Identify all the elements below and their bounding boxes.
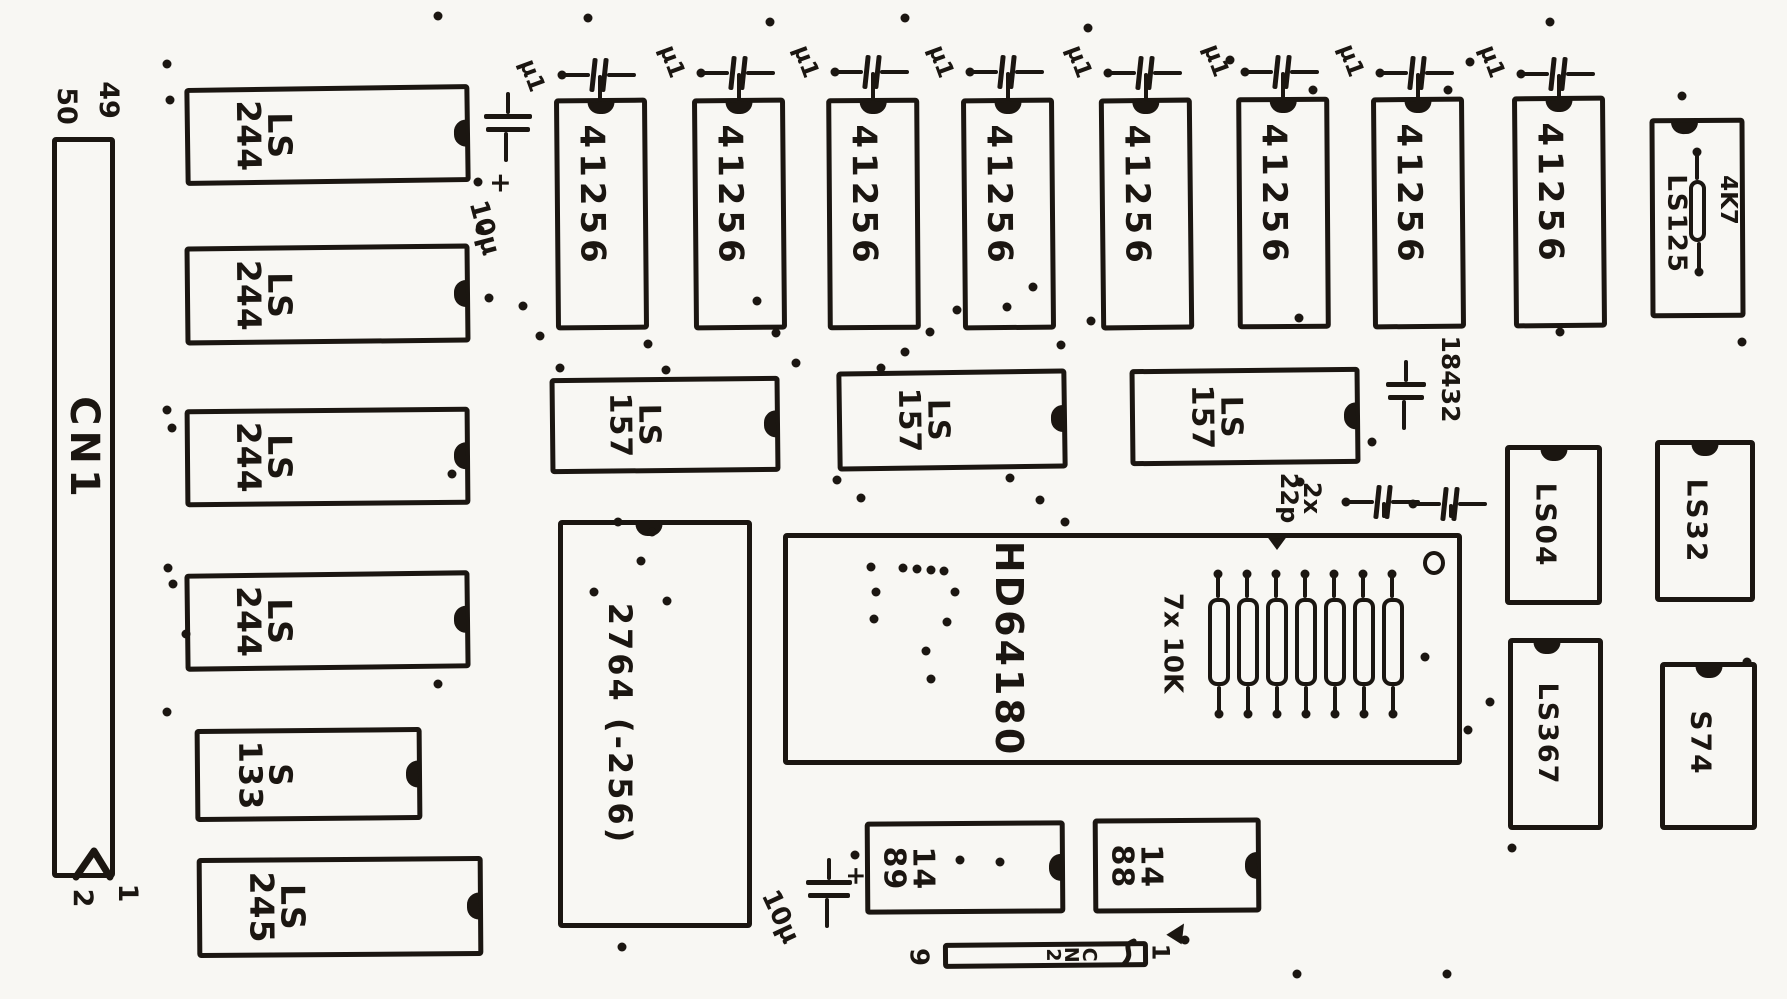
chip-41256-6: 41256: [1236, 97, 1331, 330]
chip-label-s133: S 133: [234, 740, 295, 810]
resistor-lead-dot: [1302, 710, 1311, 719]
via-dot: [663, 597, 672, 606]
via-dot: [901, 348, 910, 357]
resistor-lead-dot: [1360, 710, 1369, 719]
cap-plate: [862, 55, 871, 89]
via-dot: [476, 226, 485, 235]
resistor-lead-dot: [1331, 710, 1340, 719]
capacitor-icon-6: [1243, 54, 1319, 104]
cap-lead-dot: [1409, 500, 1418, 509]
resistor-value-4k7: 4K7: [1716, 175, 1738, 225]
pin1-notch-icon: [467, 893, 479, 920]
via-dot: [927, 675, 936, 684]
via-dot: [1295, 314, 1304, 323]
pin1-notch-icon: [406, 760, 418, 787]
cap-lead: [1402, 400, 1406, 430]
cap-lead: [827, 858, 831, 880]
via-dot: [434, 12, 443, 21]
cap-lead: [506, 92, 510, 114]
pin1-notch-icon: [1266, 535, 1288, 550]
via-dot: [956, 856, 965, 865]
resistor-lead-dot: [1389, 710, 1398, 719]
pin1-notch-icon: [1671, 122, 1698, 134]
via-dot: [637, 557, 646, 566]
resistor-icon-5: [1324, 598, 1346, 686]
resistor-lead-dot: [1693, 148, 1702, 157]
via-dot: [590, 588, 599, 597]
via-dot: [901, 14, 910, 23]
via-dot: [899, 564, 908, 573]
cap-lead-dot: [1517, 70, 1526, 79]
pin-number-cn1-1: 1: [114, 884, 140, 903]
via-dot: [1084, 24, 1093, 33]
chip-label-ls125: LS125: [1664, 174, 1689, 274]
via-dot: [662, 366, 671, 375]
chip-41256-3: 41256: [826, 98, 921, 331]
chip-label-1488: 14 88: [1107, 844, 1164, 888]
cap-lead: [1290, 70, 1319, 74]
crystal-18432-icon: [1386, 360, 1426, 430]
via-dot: [1181, 936, 1190, 945]
pin1-notch-icon: [1344, 402, 1356, 429]
via-dot: [753, 297, 762, 306]
chip-41256-1: 41256: [554, 98, 649, 331]
cap-stub: [871, 72, 875, 101]
via-dot: [833, 476, 842, 485]
via-dot: [877, 364, 886, 373]
via-dot: [766, 18, 775, 27]
cap-plate: [997, 55, 1006, 89]
chip-ls367: LS367: [1508, 638, 1603, 830]
via-dot: [1057, 341, 1066, 350]
capacitor-icon-1: [560, 57, 636, 106]
chip-ls04: LS04: [1505, 445, 1602, 605]
chip-label-ls157-2: LS 157: [894, 387, 952, 453]
chip-label-41256-4: 41256: [982, 125, 1016, 269]
via-dot: [584, 14, 593, 23]
cap-value-u1-1: μ1: [515, 57, 547, 95]
pin1-notch-icon: [454, 442, 466, 469]
chip-41256-2: 41256: [692, 98, 787, 331]
via-dot: [1087, 317, 1096, 326]
pin1-notch-icon: [1534, 642, 1561, 654]
cap-plate: [1272, 55, 1281, 89]
cap-plate: [486, 127, 530, 132]
via-dot: [940, 567, 949, 576]
cap-value-10u-bottom: 10μ: [757, 887, 803, 948]
via-dot: [1036, 496, 1045, 505]
chip-label-hd64180: HD64180: [991, 541, 1027, 758]
cap-value-u1-7: μ1: [1334, 42, 1366, 80]
chip-label-ls04: LS04: [1532, 483, 1559, 568]
capacitor-icon-4: [968, 54, 1044, 105]
chip-41256-5: 41256: [1099, 98, 1194, 331]
chip-label-ls244-1: LS 244: [232, 100, 296, 173]
chip-label-ls157-1: LS 157: [605, 392, 663, 458]
cap-stub: [1557, 74, 1561, 100]
pin1-notch-icon: [764, 410, 776, 437]
chip-label-ls157-3: LS 157: [1188, 384, 1246, 450]
via-dot: [1466, 58, 1475, 67]
pin1-notch-icon: [1695, 666, 1722, 678]
via-dot: [1743, 658, 1752, 667]
cap-stub: [1006, 72, 1010, 101]
cap-lead-dot: [697, 69, 706, 78]
cap-stub: [1449, 504, 1453, 518]
cap-plate: [1388, 395, 1424, 400]
via-dot: [922, 647, 931, 656]
crystal-value: 18432: [1438, 336, 1462, 423]
chip-ls32: LS32: [1655, 440, 1755, 602]
via-dot: [943, 618, 952, 627]
chip-41256-4: 41256: [961, 98, 1056, 331]
chip-label-41256-1: 41256: [575, 125, 609, 269]
via-dot: [951, 588, 960, 597]
resistor-lead-dot: [1359, 570, 1368, 579]
via-dot: [618, 943, 627, 952]
chip-label-ls244-4: LS 244: [232, 585, 296, 658]
capacitor-icon-5: [1106, 55, 1182, 105]
cap-lead-dot: [1376, 69, 1385, 78]
via-dot: [163, 406, 172, 415]
cap-value-u1-8: μ1: [1475, 43, 1507, 81]
via-dot: [772, 329, 781, 338]
resistor-lead-dot: [1301, 570, 1310, 579]
chip-ls244-2: LS 244: [184, 244, 470, 346]
cap-value-u1-5: μ1: [1062, 43, 1094, 81]
via-dot: [1006, 474, 1015, 483]
via-dot: [614, 518, 623, 527]
via-dot: [1061, 518, 1070, 527]
via-dot: [182, 630, 191, 639]
pin-number-cn1-49: 49: [95, 81, 121, 119]
pin-number-cn1-50: 50: [53, 87, 79, 125]
resistor-icon-4: [1295, 598, 1317, 686]
via-dot: [1309, 86, 1318, 95]
pin1-notch-icon: [454, 606, 466, 633]
cap-lead: [825, 898, 829, 928]
resistor-lead-dot: [1214, 570, 1223, 579]
cap-lead-dot: [831, 68, 840, 77]
chip-s133: S 133: [195, 727, 423, 822]
resistor-icon-2: [1237, 598, 1259, 686]
pin1-marker-icon: [1423, 551, 1445, 575]
via-dot: [1003, 303, 1012, 312]
via-dot: [870, 615, 879, 624]
via-dot: [1293, 970, 1302, 979]
via-dot: [926, 328, 935, 337]
pin1-notch-icon: [454, 120, 466, 147]
resistor-lead-dot: [1330, 570, 1339, 579]
resistor-icon-7: [1382, 598, 1404, 686]
cap-lead: [607, 73, 636, 77]
chip-label-2764: 2764 (-256): [605, 603, 635, 846]
cap-stub: [598, 75, 602, 102]
cap-lead-dot: [1342, 498, 1351, 507]
chip-ls157-2: LS 157: [836, 368, 1067, 471]
chip-label-41256-8: 41256: [1533, 123, 1567, 267]
cap-lead: [746, 71, 775, 75]
via-dot: [163, 708, 172, 717]
resistor-icon-3: [1266, 598, 1288, 686]
via-dot: [1296, 478, 1305, 487]
chip-label-ls244-2: LS 244: [233, 259, 296, 332]
capacitor-icon-8: [1519, 56, 1595, 104]
chip-label-41256-7: 41256: [1392, 124, 1426, 268]
chip-label-41256-6: 41256: [1257, 124, 1290, 268]
chip-1488: 14 88: [1093, 817, 1262, 913]
cap-plate: [1407, 56, 1416, 90]
resistor-network-value: 7x 10K: [1160, 593, 1185, 693]
via-dot: [434, 680, 443, 689]
capacitor-icon-10: [1411, 486, 1487, 522]
chip-label-41256-5: 41256: [1119, 125, 1153, 269]
cap-stub: [1281, 72, 1285, 100]
electrolytic-bottom-icon: [806, 858, 852, 928]
via-dot: [169, 580, 178, 589]
via-dot: [556, 364, 565, 373]
cap-plate: [1440, 487, 1449, 521]
chip-label-1489: 14 89: [879, 846, 936, 890]
cap-lead: [1425, 71, 1454, 75]
via-dot: [953, 306, 962, 315]
cap-stub: [1382, 502, 1386, 518]
chip-1489: 14 89: [865, 820, 1066, 914]
cap-value-u1-4: μ1: [924, 43, 956, 81]
cap-stub: [1144, 73, 1148, 101]
cap-lead-dot: [1104, 69, 1113, 78]
electrolytic-top-icon: [484, 92, 532, 162]
resistor-lead-dot: [1244, 710, 1253, 719]
via-dot: [1029, 283, 1038, 292]
chip-label-s74: S74: [1687, 710, 1714, 775]
cap-plate: [1548, 57, 1557, 91]
chip-s74: S74: [1660, 662, 1757, 830]
pcb-layout-diagram: CN1LS 244LS 244LS 244LS 244S 133LS 24541…: [0, 0, 1787, 999]
via-dot: [168, 424, 177, 433]
via-dot: [851, 851, 860, 860]
cap-lead-dot: [966, 68, 975, 77]
resistor-lead-dot: [1695, 268, 1704, 277]
resistor-lead-dot: [1243, 570, 1252, 579]
via-dot: [1738, 338, 1747, 347]
chip-ls157-3: LS 157: [1129, 367, 1360, 466]
via-dot: [1556, 328, 1565, 337]
chip-2764: 2764 (-256): [558, 520, 752, 928]
capacitor-icon-2: [699, 55, 775, 105]
via-dot: [913, 565, 922, 574]
pin1-notch-icon: [454, 280, 466, 307]
resistor-lead-dot: [1215, 710, 1224, 719]
pin-number-cn2-1: 1: [1149, 944, 1172, 961]
via-dot: [927, 566, 936, 575]
chip-label-ls32: LS32: [1683, 479, 1710, 564]
via-dot: [166, 96, 175, 105]
via-dot: [1678, 92, 1687, 101]
pin-number-cn1-2: 2: [69, 889, 95, 908]
pin-number-cn2-9: 9: [906, 948, 931, 966]
cap-lead: [504, 132, 508, 162]
chip-label-cn1: CN1: [65, 396, 103, 502]
via-dot: [1486, 698, 1495, 707]
cap-value-u1-2: μ1: [655, 43, 687, 81]
cap-lead-dot: [1241, 68, 1250, 77]
via-dot: [1508, 844, 1517, 853]
cap-plate: [806, 880, 852, 885]
chip-ls244-4: LS 244: [184, 570, 470, 671]
chip-label-cn2: C N 2: [1044, 947, 1098, 963]
via-dot: [644, 340, 653, 349]
resistor-lead-dot: [1388, 570, 1397, 579]
cap-lead: [1153, 71, 1182, 75]
pin1-notch-icon: [1051, 405, 1063, 432]
pin1-notch-icon: [1049, 853, 1061, 880]
pin1-notch-icon: [1245, 851, 1257, 878]
cap-stub: [737, 73, 741, 101]
via-dot: [536, 332, 545, 341]
cap-stub: [1416, 73, 1420, 100]
via-dot: [872, 588, 881, 597]
chip-label-ls245: LS 245: [245, 871, 308, 943]
resistor-icon-4k7: [1689, 180, 1706, 242]
chip-cn1: CN1: [52, 137, 115, 878]
via-dot: [1444, 86, 1453, 95]
capacitor-icon-7: [1378, 55, 1454, 104]
cap-lead: [1404, 360, 1408, 382]
via-dot: [519, 302, 528, 311]
cap-plate: [808, 893, 850, 898]
via-dot: [1443, 970, 1452, 979]
resistor-icon-6: [1353, 598, 1375, 686]
capacitor-icon-3: [833, 54, 909, 105]
resistor-lead-dot: [1273, 710, 1282, 719]
via-dot: [1464, 726, 1473, 735]
cap-value-u1-3: μ1: [789, 43, 821, 81]
cap-lead: [1566, 72, 1595, 76]
via-dot: [163, 60, 172, 69]
via-dot: [648, 528, 657, 537]
cap-lead: [1458, 502, 1487, 506]
cap-plate: [1135, 56, 1144, 90]
pin1-notch-icon: [1540, 449, 1567, 461]
via-dot: [857, 494, 866, 503]
cap-plate: [589, 58, 598, 92]
cap-polarity-top: +: [487, 172, 513, 195]
cap-plate: [1373, 485, 1382, 519]
via-dot: [448, 470, 457, 479]
via-dot: [1226, 56, 1235, 65]
chip-ls244-1: LS 244: [184, 84, 470, 186]
chip-label-41256-3: 41256: [847, 125, 880, 269]
via-dot: [474, 178, 483, 187]
chip-label-ls244-3: LS 244: [233, 421, 296, 493]
via-dot: [1368, 438, 1377, 447]
chip-label-41256-2: 41256: [713, 125, 747, 269]
chip-41256-7: 41256: [1371, 97, 1466, 330]
chip-cn2: C N 2: [943, 941, 1148, 969]
via-dot: [996, 858, 1005, 867]
cap-plate: [1386, 382, 1426, 387]
chip-ls157-1: LS 157: [550, 376, 781, 474]
chip-41256-8: 41256: [1512, 96, 1607, 329]
chip-ls245: LS 245: [197, 856, 484, 958]
resistor-icon-1: [1208, 598, 1230, 686]
cap-plate: [484, 114, 532, 119]
cap-lead: [1015, 70, 1044, 74]
cap-plate: [728, 56, 737, 90]
via-dot: [1546, 18, 1555, 27]
via-dot: [792, 359, 801, 368]
pin1-notch-icon: [1692, 444, 1719, 456]
via-dot: [485, 294, 494, 303]
cap-lead: [880, 70, 909, 74]
via-dot: [1421, 653, 1430, 662]
chip-ls244-3: LS 244: [185, 407, 471, 507]
via-dot: [164, 564, 173, 573]
cap-lead-dot: [558, 71, 567, 80]
via-dot: [867, 563, 876, 572]
chip-label-ls367: LS367: [1534, 682, 1560, 785]
resistor-lead-dot: [1272, 570, 1281, 579]
